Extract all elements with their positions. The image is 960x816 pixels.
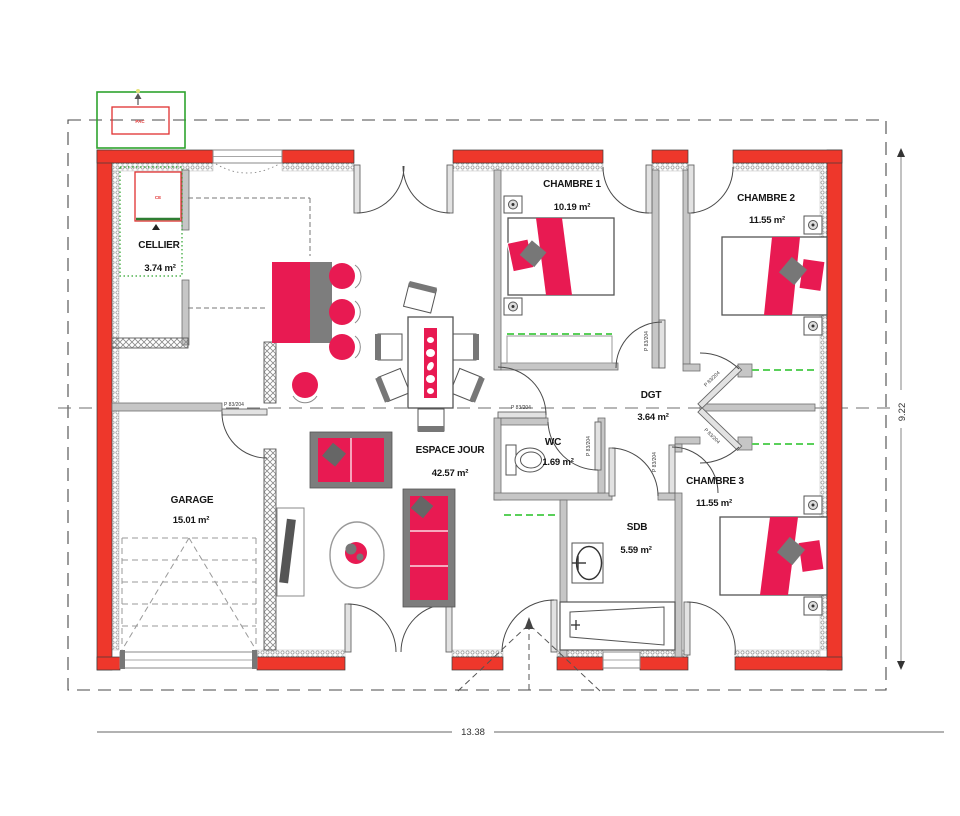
door-size-label: P 83/204 [224,402,244,408]
room-label-sdb: SDB [627,522,648,533]
dining-table [375,281,485,432]
entrance-door-leaf [551,600,557,652]
chambre1-door-leaf [659,320,665,368]
kitchen-window [213,150,282,173]
floor-plan-drawing: CELLIER 3.74 m² GARAGE 15.01 m² ESPACE J… [0,0,960,816]
bathtub [560,602,675,650]
pillow [798,540,824,573]
chambre3-french-window-leaf [684,602,690,655]
stool [329,263,355,289]
chambre3-door-leaf [669,445,675,493]
room-area-chambre1: 10.19 m² [554,202,590,213]
chair [450,368,485,402]
water-heater-unit [135,172,181,230]
room-label-chambre2: CHAMBRE 2 [737,193,795,204]
garden-door-leaf [345,604,351,652]
dim-width-label: 13.38 [461,727,485,738]
stool [292,372,318,398]
chambre1-closet [507,336,612,363]
bed-chambre1 [504,196,614,315]
bed-chambre2 [722,216,827,335]
room-area-chambre2: 11.55 m² [749,215,785,226]
garage-door [120,650,257,669]
arrow-down-icon [897,661,905,670]
door-size-label: P 83/204 [511,405,531,411]
sofa-three-seats [403,489,455,607]
room-area-dgt: 3.64 m² [637,412,668,423]
sofa-loveseat [310,432,392,488]
garage-access-door-leaf [222,409,267,415]
door-size-label: P 83/204 [652,452,658,472]
room-area-cellier: 3.74 m² [144,263,175,274]
hall-door-leaf [498,412,546,418]
garage-door-mechanism [122,538,256,650]
stool [329,299,355,325]
door-size-label: P 83/204 [644,331,650,351]
sink [572,543,603,583]
floor-plan-canvas: CELLIER 3.74 m² GARAGE 15.01 m² ESPACE J… [0,0,960,816]
outdoor-unit-label: PAC [135,119,145,124]
room-label-cellier: CELLIER [138,240,180,251]
rug [330,522,384,588]
room-label-chambre1: CHAMBRE 1 [543,179,601,190]
wc-door-leaf [595,422,601,470]
room-label-espace-jour: ESPACE JOUR [416,445,486,456]
stool [329,334,355,360]
french-door-leaf [447,165,453,213]
room-label-wc: WC [545,437,561,448]
pillow [799,259,825,292]
interior-walls [112,170,815,657]
room-area-wc: 1.69 m² [542,457,573,468]
water-heater-label: CE [155,195,161,200]
room-label-chambre3: CHAMBRE 3 [686,476,744,487]
room-area-espace-jour: 42.57 m² [432,468,468,479]
french-door-leaf [354,165,360,213]
bed-chambre3 [720,496,827,615]
marker-triangle-icon [152,224,160,230]
room-area-chambre3: 11.55 m² [696,498,732,509]
toilet [506,445,545,475]
room-area-garage: 15.01 m² [173,515,209,526]
chair [375,368,410,402]
chair [378,334,402,360]
door-size-label: P 83/204 [586,436,592,456]
sdb-window [603,652,640,668]
arrow-up-icon [897,148,905,157]
room-label-dgt: DGT [641,390,662,401]
tv-stand [277,508,304,596]
chambre2-window-leaf [688,165,694,213]
garden-door-leaf [446,604,452,652]
kitchen-island [272,262,361,403]
structural-partition-walls [112,338,276,650]
chambre1-window-leaf [646,165,652,213]
chair [452,334,476,360]
room-label-garage: GARAGE [171,495,214,506]
sdb-door-leaf [609,448,615,496]
vent-dot-icon [136,89,140,93]
dim-height-label: 9.22 [897,403,908,422]
room-area-sdb: 5.59 m² [620,545,651,556]
